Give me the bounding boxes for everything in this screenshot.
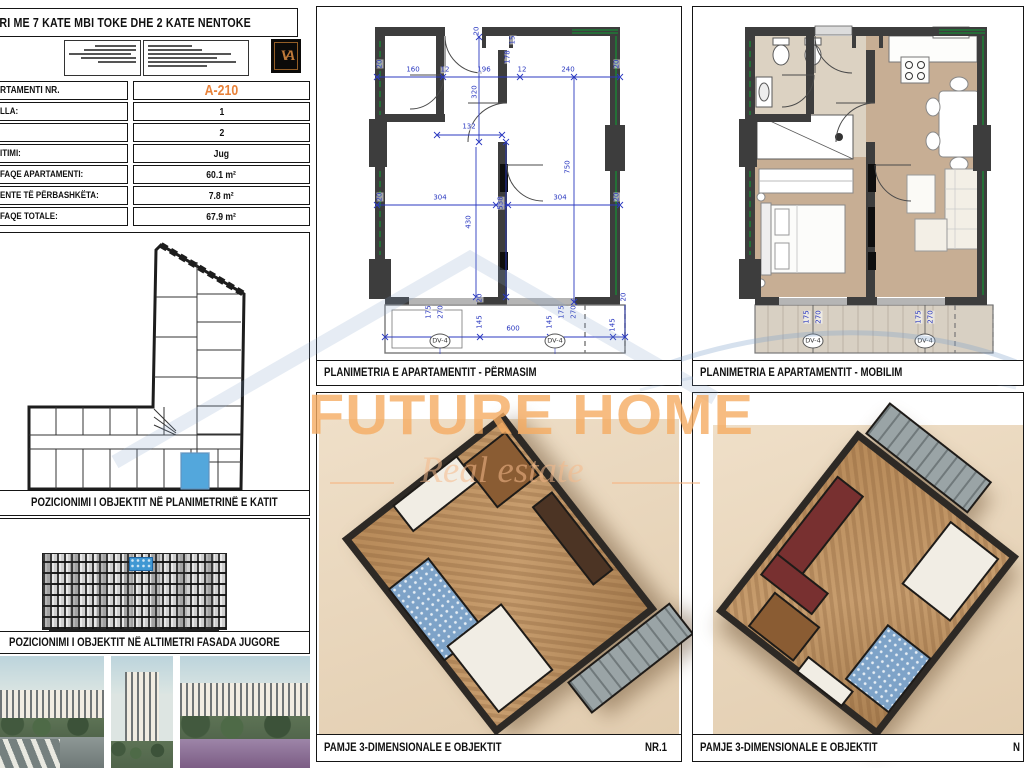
table-row-label: ENTE TË PËRBASHKËTA:	[0, 186, 128, 205]
view3d-caption-1: PAMJE 3-DIMENSIONALE E OBJEKTIT	[324, 742, 501, 754]
plan-furnished-drawing	[693, 7, 1021, 361]
plan-dimensioned-drawing	[317, 7, 679, 361]
view3d-render-2	[713, 425, 1023, 735]
view3d-panel-1: PAMJE 3-DIMENSIONALE E OBJEKTIT NR.1	[316, 392, 682, 762]
apartment-number: A-210	[205, 82, 239, 99]
view3d-render-1	[319, 419, 679, 735]
table-row-label: ITIMI:	[0, 144, 128, 163]
highlighted-unit-keyplan	[181, 453, 209, 489]
table-row-label: LLA:	[0, 102, 128, 121]
view3d-number-2: N	[1013, 742, 1020, 754]
table-row-value: Jug	[133, 144, 310, 163]
table-row-label: RTAMENTI NR.	[0, 81, 128, 100]
watermark-dash-left	[330, 482, 394, 484]
plan-furnished-caption-bar: PLANIMETRIA E APARTAMENTIT - MOBILIM	[693, 360, 1023, 385]
table-row-label: FAQE TOTALE:	[0, 207, 128, 226]
table-row-value: 2	[133, 123, 310, 142]
company-info-block-1	[64, 40, 141, 76]
listing-sheet: DINE SHERBIMI HOTELIERI ME 7 KATE MBI TO…	[0, 0, 1024, 768]
elevation-panel: POZICIONIMI I OBJEKTIT NË ALTIMETRI FASA…	[0, 518, 310, 654]
plan-dimensioned-caption-bar: PLANIMETRIA E APARTAMENTIT - PËRMASIM	[317, 360, 681, 385]
sheet-title-bar: DINE SHERBIMI HOTELIERI ME 7 KATE MBI TO…	[0, 8, 298, 37]
plan-furnished-panel: 175270DV-4175270DV-4 PLANIMETRIA E APART…	[692, 6, 1024, 386]
exterior-render-photo-1	[0, 656, 104, 768]
company-info-block-2	[143, 40, 249, 76]
key-plan-caption: POZICIONIMI I OBJEKTIT NË PLANIMETRINË E…	[31, 497, 278, 509]
table-row-value: 7.8 m²	[133, 186, 310, 205]
exterior-render-photo-3	[180, 656, 310, 768]
highlighted-unit-elevation	[130, 558, 152, 570]
logo-monogram: VA	[271, 39, 301, 73]
table-row-value: 67.9 m²	[133, 207, 310, 226]
table-row-label: FAQE APARTAMENTI:	[0, 165, 128, 184]
view3d-caption-2: PAMJE 3-DIMENSIONALE E OBJEKTIT	[700, 742, 877, 754]
plan-dimensioned-caption: PLANIMETRIA E APARTAMENTIT - PËRMASIM	[324, 367, 537, 379]
view3d-number-1: NR.1	[645, 742, 667, 754]
key-plan-drawing	[1, 237, 311, 491]
elevation-caption-bar: POZICIONIMI I OBJEKTIT NË ALTIMETRI FASA…	[0, 631, 309, 653]
render3d-apartment-2	[716, 430, 1019, 737]
plan-dimensioned-panel: 2016012196178122402020153201323045383042…	[316, 6, 682, 386]
key-plan-caption-bar: POZICIONIMI I OBJEKTIT NË PLANIMETRINË E…	[0, 490, 309, 515]
key-plan-panel: POZICIONIMI I OBJEKTIT NË PLANIMETRINË E…	[0, 232, 310, 516]
render3d-apartment-1	[342, 412, 657, 735]
table-row-value: A-210	[133, 81, 310, 100]
view3d-panel-2: PAMJE 3-DIMENSIONALE E OBJEKTIT N	[692, 392, 1024, 762]
view3d-caption-bar-1: PAMJE 3-DIMENSIONALE E OBJEKTIT NR.1	[317, 734, 681, 761]
exterior-render-photo-2	[111, 656, 173, 768]
table-row-value: 1	[133, 102, 310, 121]
elevation-caption: POZICIONIMI I OBJEKTIT NË ALTIMETRI FASA…	[9, 637, 280, 649]
watermark-dash-right	[612, 482, 700, 484]
view3d-caption-bar-2: PAMJE 3-DIMENSIONALE E OBJEKTIT N	[693, 734, 1023, 761]
sheet-title: DINE SHERBIMI HOTELIERI ME 7 KATE MBI TO…	[0, 15, 251, 30]
plan-furnished-caption: PLANIMETRIA E APARTAMENTIT - MOBILIM	[700, 367, 902, 379]
company-logo: VA	[271, 39, 301, 73]
table-row-value: 60.1 m²	[133, 165, 310, 184]
table-row-label	[0, 123, 128, 142]
